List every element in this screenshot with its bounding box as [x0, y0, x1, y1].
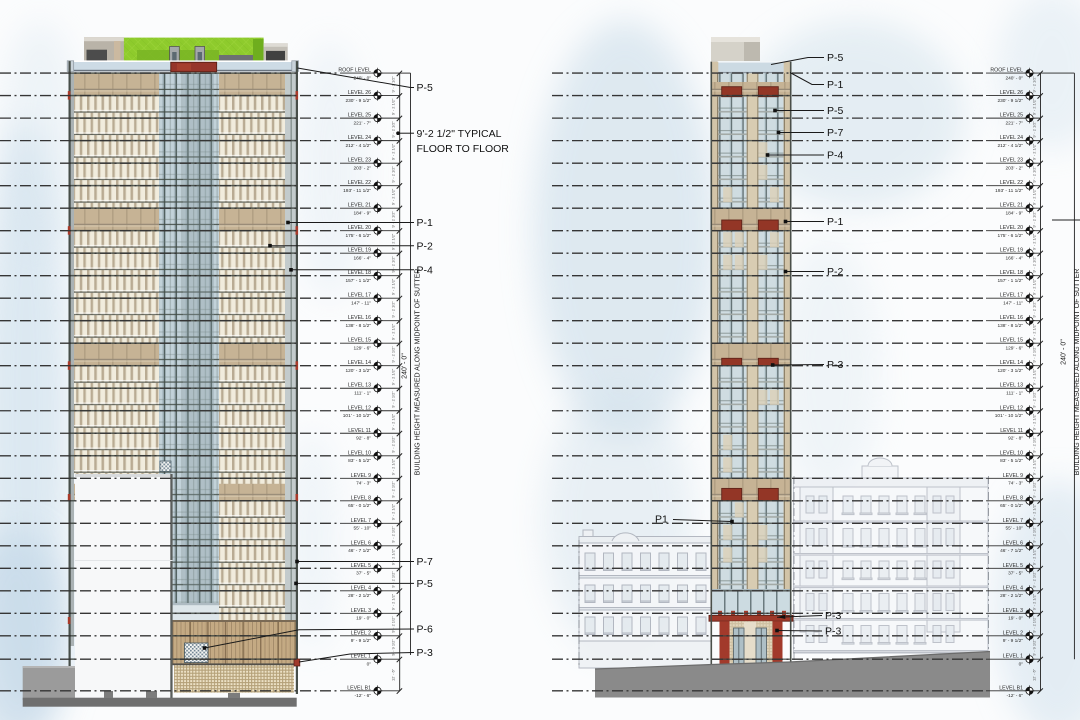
svg-text:LEVEL 13: LEVEL 13 — [1000, 383, 1023, 389]
svg-text:83' - 5 1/2": 83' - 5 1/2" — [348, 458, 371, 464]
svg-text:9' - 2 1/2": 9' - 2 1/2" — [1032, 301, 1037, 318]
svg-text:9' - 2 1/2": 9' - 2 1/2" — [391, 121, 396, 138]
svg-text:LEVEL 18: LEVEL 18 — [1000, 270, 1023, 276]
svg-text:212' - 4 1/2": 212' - 4 1/2" — [345, 143, 371, 149]
svg-text:19' - 0": 19' - 0" — [1008, 616, 1023, 622]
svg-text:9' - 2 1/2": 9' - 2 1/2" — [1032, 98, 1037, 115]
svg-text:129' - 6": 129' - 6" — [353, 346, 371, 352]
svg-text:P-6: P-6 — [417, 624, 434, 636]
svg-text:9' - 2 1/2": 9' - 2 1/2" — [391, 143, 396, 160]
svg-text:9' - 2 1/2": 9' - 2 1/2" — [1032, 571, 1037, 588]
svg-text:LEVEL 16: LEVEL 16 — [1000, 315, 1023, 321]
svg-text:LEVEL 23: LEVEL 23 — [1000, 158, 1023, 164]
svg-text:FLOOR TO FLOOR: FLOOR TO FLOOR — [417, 143, 510, 155]
svg-text:9' - 2 1/2": 9' - 2 1/2" — [391, 346, 396, 363]
svg-text:9' - 2 1/2": 9' - 2 1/2" — [1032, 526, 1037, 543]
svg-text:P-1: P-1 — [827, 216, 844, 228]
svg-text:LEVEL 9: LEVEL 9 — [1003, 473, 1023, 479]
svg-text:P-1: P-1 — [417, 217, 434, 229]
svg-text:9' - 2 1/2": 9' - 2 1/2" — [391, 323, 396, 340]
svg-text:166' - 4": 166' - 4" — [353, 255, 371, 261]
svg-text:9' - 2 1/2": 9' - 2 1/2" — [1032, 143, 1037, 160]
svg-text:P-5: P-5 — [827, 105, 844, 117]
svg-text:LEVEL 4: LEVEL 4 — [351, 585, 371, 591]
svg-text:9' - 2 1/2": 9' - 2 1/2" — [1032, 458, 1037, 475]
svg-text:240' - 0": 240' - 0" — [402, 353, 409, 379]
svg-text:LEVEL 26: LEVEL 26 — [348, 90, 371, 96]
svg-text:P-5: P-5 — [417, 82, 434, 94]
svg-text:92' - 8": 92' - 8" — [356, 436, 371, 442]
svg-text:9' - 2 1/2": 9' - 2 1/2" — [1032, 503, 1037, 520]
svg-text:LEVEL 8: LEVEL 8 — [351, 495, 371, 501]
svg-text:9' - 2 1/2": 9' - 2 1/2" — [391, 278, 396, 295]
svg-text:LEVEL 2: LEVEL 2 — [351, 630, 371, 636]
svg-text:28' - 2 1/2": 28' - 2 1/2" — [1000, 593, 1023, 599]
svg-text:LEVEL B1: LEVEL B1 — [999, 685, 1023, 691]
svg-text:184' - 9": 184' - 9" — [353, 210, 371, 216]
svg-text:111' - 1": 111' - 1" — [354, 391, 371, 397]
svg-text:240' - 0": 240' - 0" — [1061, 339, 1068, 365]
svg-text:9' - 2 1/2": 9' - 2 1/2" — [391, 481, 396, 498]
svg-text:147' - 11": 147' - 11" — [351, 301, 371, 307]
svg-text:129' - 6": 129' - 6" — [1005, 346, 1023, 352]
svg-text:LEVEL 7: LEVEL 7 — [351, 518, 371, 524]
svg-text:9' - 2 1/2": 9' - 2 1/2" — [391, 391, 396, 408]
svg-text:9' - 2 1/2": 9' - 2 1/2" — [391, 233, 396, 250]
svg-text:LEVEL 18: LEVEL 18 — [348, 270, 371, 276]
svg-text:9' - 2 1/2": 9' - 2 1/2" — [1032, 76, 1037, 93]
svg-text:9' - 2 1/2": 9' - 2 1/2" — [391, 526, 396, 543]
svg-text:12' - 6": 12' - 6" — [1032, 668, 1037, 681]
svg-text:9' - 2 1/2": 9' - 2 1/2" — [391, 571, 396, 588]
svg-text:9'-2 1/2" TYPICAL: 9'-2 1/2" TYPICAL — [417, 128, 502, 140]
svg-text:LEVEL 3: LEVEL 3 — [351, 608, 371, 614]
svg-text:LEVEL 12: LEVEL 12 — [1000, 405, 1023, 411]
svg-text:9' - 2 1/2": 9' - 2 1/2" — [1032, 211, 1037, 228]
svg-text:ROOF LEVEL: ROOF LEVEL — [338, 68, 371, 74]
svg-text:212' - 4 1/2": 212' - 4 1/2" — [997, 143, 1023, 149]
svg-text:LEVEL 9: LEVEL 9 — [351, 473, 371, 479]
svg-text:P-3: P-3 — [825, 626, 842, 638]
svg-text:P-2: P-2 — [417, 240, 434, 252]
svg-text:55' - 10": 55' - 10" — [1005, 526, 1023, 532]
svg-text:LEVEL 26: LEVEL 26 — [1000, 90, 1023, 96]
svg-text:9' - 2 1/2": 9' - 2 1/2" — [1032, 166, 1037, 183]
svg-text:P-2: P-2 — [827, 266, 844, 278]
svg-text:111' - 1": 111' - 1" — [1006, 391, 1023, 397]
svg-text:P-3: P-3 — [417, 647, 434, 659]
svg-text:LEVEL 1: LEVEL 1 — [351, 654, 371, 660]
svg-text:9' - 2 1/2": 9' - 2 1/2" — [1032, 346, 1037, 363]
svg-text:LEVEL 22: LEVEL 22 — [348, 180, 371, 186]
svg-text:P-3: P-3 — [825, 610, 842, 622]
svg-text:LEVEL 14: LEVEL 14 — [1000, 360, 1023, 366]
svg-text:-12' - 6": -12' - 6" — [1007, 693, 1024, 699]
svg-text:120' - 3 1/2": 120' - 3 1/2" — [345, 368, 371, 374]
svg-text:9' - 2 1/2": 9' - 2 1/2" — [391, 368, 396, 385]
svg-text:9' - 2 1/2": 9' - 2 1/2" — [1032, 413, 1037, 430]
svg-text:101' - 10 1/2": 101' - 10 1/2" — [343, 413, 372, 419]
svg-text:9' - 2 1/2": 9' - 2 1/2" — [1032, 278, 1037, 295]
svg-text:74' - 3": 74' - 3" — [1008, 481, 1023, 487]
svg-text:9' - 2 1/2": 9' - 2 1/2" — [1032, 481, 1037, 498]
svg-text:LEVEL 6: LEVEL 6 — [1003, 540, 1023, 546]
svg-text:LEVEL 7: LEVEL 7 — [1003, 518, 1023, 524]
svg-text:LEVEL 15: LEVEL 15 — [348, 338, 371, 344]
svg-text:LEVEL 23: LEVEL 23 — [348, 158, 371, 164]
svg-text:0": 0" — [367, 662, 372, 668]
svg-text:P-5: P-5 — [417, 578, 434, 590]
svg-text:LEVEL 10: LEVEL 10 — [348, 450, 371, 456]
svg-text:ROOF LEVEL: ROOF LEVEL — [990, 68, 1023, 74]
svg-text:12' - 6": 12' - 6" — [391, 668, 396, 681]
svg-text:37' - 5": 37' - 5" — [356, 571, 371, 577]
svg-text:LEVEL 19: LEVEL 19 — [1000, 248, 1023, 254]
svg-text:LEVEL 19: LEVEL 19 — [348, 248, 371, 254]
svg-text:LEVEL 21: LEVEL 21 — [348, 203, 371, 209]
svg-text:92' - 8": 92' - 8" — [1008, 436, 1023, 442]
svg-text:65' - 0 1/2": 65' - 0 1/2" — [1000, 503, 1023, 509]
svg-text:221' - 7": 221' - 7" — [353, 120, 371, 126]
svg-text:LEVEL 15: LEVEL 15 — [1000, 338, 1023, 344]
svg-text:9' - 2 1/2": 9' - 2 1/2" — [391, 188, 396, 205]
svg-text:9' - 2 1/2": 9' - 2 1/2" — [1032, 593, 1037, 610]
svg-text:LEVEL 4: LEVEL 4 — [1003, 585, 1023, 591]
svg-text:LEVEL 16: LEVEL 16 — [348, 315, 371, 321]
svg-text:LEVEL 25: LEVEL 25 — [1000, 113, 1023, 119]
svg-text:LEVEL 2: LEVEL 2 — [1003, 630, 1023, 636]
svg-text:157' - 1 1/2": 157' - 1 1/2" — [345, 278, 371, 284]
svg-text:184' - 9": 184' - 9" — [1005, 210, 1023, 216]
svg-text:240' - 0": 240' - 0" — [1005, 75, 1023, 81]
svg-text:9' - 9 1/2": 9' - 9 1/2" — [1003, 638, 1024, 644]
svg-text:65' - 0 1/2": 65' - 0 1/2" — [348, 503, 371, 509]
svg-text:LEVEL 20: LEVEL 20 — [1000, 225, 1023, 231]
svg-text:55' - 10": 55' - 10" — [353, 526, 371, 532]
svg-text:LEVEL 17: LEVEL 17 — [1000, 293, 1023, 299]
svg-text:P-7: P-7 — [827, 127, 844, 139]
svg-text:9' - 2 1/2": 9' - 2 1/2" — [391, 413, 396, 430]
svg-text:203' - 2": 203' - 2" — [1005, 165, 1023, 171]
svg-text:0": 0" — [1019, 662, 1024, 668]
svg-text:P-1: P-1 — [827, 79, 844, 91]
svg-text:9' - 2 1/2": 9' - 2 1/2" — [391, 98, 396, 115]
svg-text:LEVEL 20: LEVEL 20 — [348, 225, 371, 231]
svg-text:LEVEL 21: LEVEL 21 — [1000, 203, 1023, 209]
svg-text:83' - 5 1/2": 83' - 5 1/2" — [1000, 458, 1023, 464]
svg-text:LEVEL 24: LEVEL 24 — [1000, 135, 1023, 141]
svg-text:9' - 2 1/2": 9' - 2 1/2" — [1032, 548, 1037, 565]
svg-text:9' - 2 1/2": 9' - 2 1/2" — [391, 436, 396, 453]
svg-text:138' - 8 1/2": 138' - 8 1/2" — [345, 323, 371, 329]
svg-text:LEVEL 17: LEVEL 17 — [348, 293, 371, 299]
svg-text:LEVEL 13: LEVEL 13 — [348, 383, 371, 389]
svg-text:LEVEL 5: LEVEL 5 — [351, 563, 371, 569]
svg-text:157' - 1 1/2": 157' - 1 1/2" — [997, 278, 1023, 284]
svg-text:37' - 5": 37' - 5" — [1008, 571, 1023, 577]
svg-text:9' - 9 1/2": 9' - 9 1/2" — [1032, 639, 1037, 656]
svg-text:203' - 2": 203' - 2" — [353, 165, 371, 171]
svg-text:9' - 2 1/2": 9' - 2 1/2" — [1032, 391, 1037, 408]
svg-text:LEVEL B1: LEVEL B1 — [347, 685, 371, 691]
svg-text:9' - 2 1/2": 9' - 2 1/2" — [391, 503, 396, 520]
svg-text:P-5: P-5 — [827, 52, 844, 64]
svg-text:175' - 6 1/2": 175' - 6 1/2" — [997, 233, 1023, 239]
svg-text:9' - 2 1/2": 9' - 2 1/2" — [1032, 121, 1037, 138]
svg-text:46' - 7 1/2": 46' - 7 1/2" — [348, 548, 371, 554]
svg-text:9' - 2 1/2": 9' - 2 1/2" — [391, 458, 396, 475]
svg-text:P-3: P-3 — [827, 359, 844, 371]
svg-text:P-7: P-7 — [417, 556, 434, 568]
svg-text:120' - 3 1/2": 120' - 3 1/2" — [997, 368, 1023, 374]
svg-text:9' - 2 1/2": 9' - 2 1/2" — [1032, 188, 1037, 205]
svg-text:221' - 7": 221' - 7" — [1005, 120, 1023, 126]
svg-text:101' - 10 1/2": 101' - 10 1/2" — [995, 413, 1024, 419]
svg-text:LEVEL 1: LEVEL 1 — [1003, 654, 1023, 660]
svg-text:9' - 2 1/2": 9' - 2 1/2" — [1032, 256, 1037, 273]
svg-text:193' - 11 1/2": 193' - 11 1/2" — [995, 188, 1023, 194]
svg-text:LEVEL 11: LEVEL 11 — [348, 428, 371, 434]
svg-text:230' - 9 1/2": 230' - 9 1/2" — [997, 98, 1023, 104]
svg-text:LEVEL 25: LEVEL 25 — [348, 113, 371, 119]
svg-text:230' - 9 1/2": 230' - 9 1/2" — [345, 98, 371, 104]
svg-text:9' - 2 1/2": 9' - 2 1/2" — [391, 211, 396, 228]
svg-text:-12' - 6": -12' - 6" — [355, 693, 372, 699]
svg-text:9' - 2 1/2": 9' - 2 1/2" — [391, 548, 396, 565]
svg-text:46' - 7 1/2": 46' - 7 1/2" — [1000, 548, 1023, 554]
svg-text:9' - 2 1/2": 9' - 2 1/2" — [391, 616, 396, 633]
svg-text:LEVEL 6: LEVEL 6 — [351, 540, 371, 546]
svg-text:9' - 2 1/2": 9' - 2 1/2" — [1032, 368, 1037, 385]
svg-text:LEVEL 14: LEVEL 14 — [348, 360, 371, 366]
svg-text:P1: P1 — [655, 514, 668, 526]
svg-text:LEVEL 10: LEVEL 10 — [1000, 450, 1023, 456]
svg-text:74' - 3": 74' - 3" — [356, 481, 371, 487]
svg-text:P-4: P-4 — [827, 150, 844, 162]
svg-text:LEVEL 11: LEVEL 11 — [1000, 428, 1023, 434]
svg-text:166' - 4": 166' - 4" — [1005, 255, 1023, 261]
svg-text:28' - 2 1/2": 28' - 2 1/2" — [348, 593, 371, 599]
svg-text:P-4: P-4 — [417, 265, 434, 277]
svg-text:147' - 11": 147' - 11" — [1003, 301, 1023, 307]
svg-text:BUILDING HEIGHT MEASURED ALONG: BUILDING HEIGHT MEASURED ALONG MIDPOINT … — [415, 269, 422, 476]
svg-text:9' - 2 1/2": 9' - 2 1/2" — [1032, 436, 1037, 453]
svg-text:BUILDING HEIGHT MEASURED ALONG: BUILDING HEIGHT MEASURED ALONG MIDPOINT … — [1074, 269, 1080, 476]
svg-text:LEVEL 22: LEVEL 22 — [1000, 180, 1023, 186]
svg-text:LEVEL 5: LEVEL 5 — [1003, 563, 1023, 569]
svg-text:19' - 0": 19' - 0" — [356, 616, 371, 622]
svg-text:LEVEL 8: LEVEL 8 — [1003, 495, 1023, 501]
svg-text:LEVEL 12: LEVEL 12 — [348, 405, 371, 411]
svg-text:193' - 11 1/2": 193' - 11 1/2" — [343, 188, 371, 194]
svg-text:175' - 6 1/2": 175' - 6 1/2" — [345, 233, 371, 239]
svg-text:LEVEL 3: LEVEL 3 — [1003, 608, 1023, 614]
svg-text:138' - 8 1/2": 138' - 8 1/2" — [997, 323, 1023, 329]
svg-text:LEVEL 24: LEVEL 24 — [348, 135, 371, 141]
svg-text:9' - 9 1/2": 9' - 9 1/2" — [351, 638, 372, 644]
svg-text:9' - 2 1/2": 9' - 2 1/2" — [391, 301, 396, 318]
svg-text:9' - 2 1/2": 9' - 2 1/2" — [391, 166, 396, 183]
svg-text:9' - 2 1/2": 9' - 2 1/2" — [1032, 616, 1037, 633]
svg-text:9' - 2 1/2": 9' - 2 1/2" — [1032, 323, 1037, 340]
svg-text:9' - 2 1/2": 9' - 2 1/2" — [1032, 233, 1037, 250]
svg-text:9' - 2 1/2": 9' - 2 1/2" — [391, 593, 396, 610]
